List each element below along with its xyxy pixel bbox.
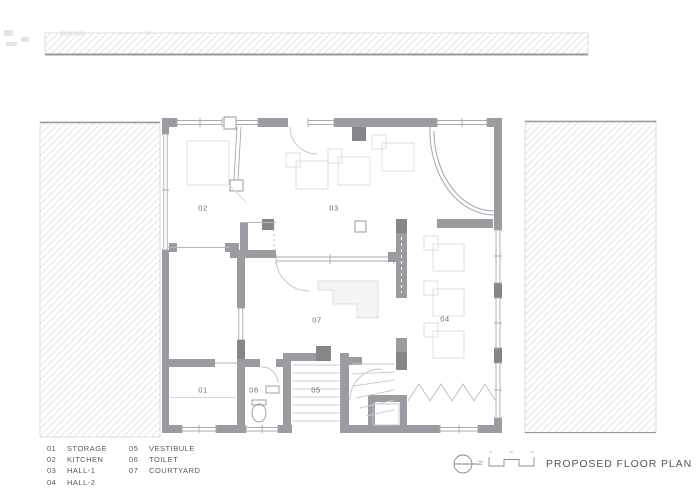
legend-label: COURTYARD: [144, 465, 200, 476]
room-label-vestibule: 05: [311, 386, 321, 395]
legend-code: 03: [47, 465, 62, 476]
legend-code: 04: [47, 477, 62, 488]
windows: [162, 117, 502, 433]
legend-label: KITCHEN: [62, 454, 103, 465]
legend-label: TOILET: [144, 454, 178, 465]
legend-code: 02: [47, 454, 62, 465]
site-block-right: [525, 121, 656, 433]
room-label-toilet: 06: [249, 386, 259, 395]
folding-partition: [408, 384, 495, 401]
room-label-courtyard: 07: [312, 316, 322, 325]
legend-item: 05 VESTIBULE: [129, 443, 200, 454]
legend-column-2: 05 VESTIBULE 06 TOILET 07 COURTYARD: [129, 443, 200, 488]
legend-item: 07 COURTYARD: [129, 465, 200, 476]
drawing-title: PROPOSED FLOOR PLAN: [546, 458, 692, 470]
room-label-hall-1: 03: [329, 204, 339, 213]
courtyard-canopy: [318, 281, 378, 318]
legend-item: 02 KITCHEN: [47, 454, 107, 465]
scale-bar: [489, 452, 534, 466]
legend-code: 05: [129, 443, 144, 454]
floor-plan-drawing: N: [0, 0, 700, 495]
curved-wall: [430, 127, 494, 215]
site-band-top: [45, 33, 588, 55]
legend-item: 03 HALL-1: [47, 465, 107, 476]
legend-column-1: 01 STORAGE 02 KITCHEN 03 HALL-1 04 HALL-…: [47, 443, 107, 488]
legend-label: STORAGE: [62, 443, 107, 454]
room-legend: 01 STORAGE 02 KITCHEN 03 HALL-1 04 HALL-…: [47, 443, 200, 488]
legend-label: HALL-1: [62, 465, 95, 476]
legend-item: 01 STORAGE: [47, 443, 107, 454]
legend-item: 06 TOILET: [129, 454, 200, 465]
drawing-sheet: N 01 02 03 04 05 06 07 01 STORAGE 02 KIT…: [0, 0, 700, 495]
legend-code: 06: [129, 454, 144, 465]
legend-item: 04 HALL-2: [47, 477, 107, 488]
outer-walls: [162, 118, 502, 433]
room-label-storage: 01: [198, 386, 208, 395]
legend-label: HALL-2: [62, 477, 95, 488]
legend-code: 07: [129, 465, 144, 476]
courtyard-column: [355, 221, 366, 232]
north-arrow-icon: N: [454, 455, 482, 473]
legend-label: VESTIBULE: [144, 443, 195, 454]
room-label-kitchen: 02: [198, 204, 208, 213]
svg-text:N: N: [476, 461, 482, 465]
site-block-left: [40, 122, 160, 437]
legend-code: 01: [47, 443, 62, 454]
room-label-hall-2: 04: [440, 315, 450, 324]
